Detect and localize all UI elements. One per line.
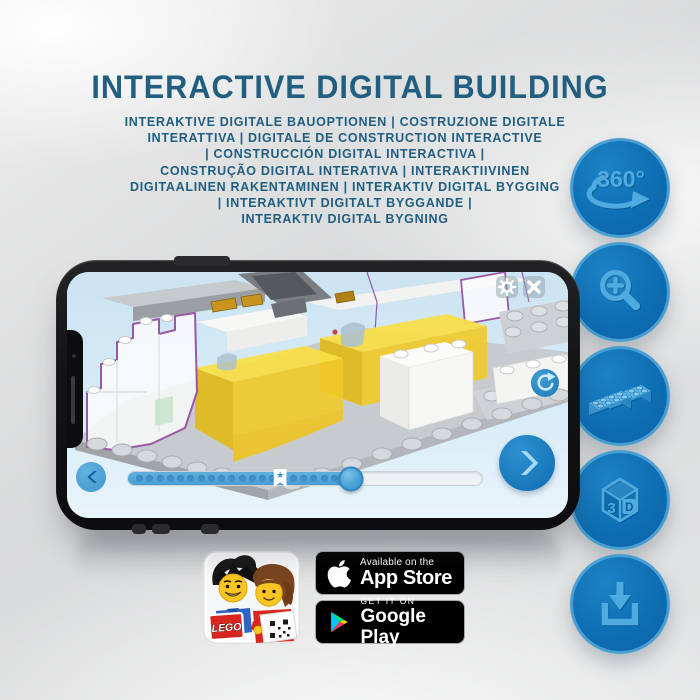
feature-badge-3d: 3 D <box>570 450 670 550</box>
slider-dots <box>136 472 338 485</box>
progress-slider[interactable]: ★ <box>127 471 483 486</box>
app-store-badge[interactable]: Available on the App Store <box>315 551 465 595</box>
subtitle-line: CONSTRUÇÃO DIGITAL INTERATIVA | INTERAKT… <box>45 163 645 179</box>
lego-app-icon[interactable]: LEGO <box>203 551 300 644</box>
3d-cube-icon: 3 D <box>592 472 648 528</box>
camera-notch <box>67 330 83 448</box>
subtitle-line: | CONSTRUCCIÓN DIGITAL INTERACTIVA | <box>45 146 645 162</box>
speaker-icon <box>71 376 75 424</box>
subtitle-line: INTERAKTIV DIGITAL BYGNING <box>45 211 645 227</box>
lego-logo-text: LEGO <box>211 621 242 635</box>
subtitle-block: INTERAKTIVE DIGITALE BAUOPTIONEN | COSTR… <box>45 114 645 227</box>
bricks-icon <box>587 367 653 425</box>
subtitle-line: INTERAKTIVE DIGITALE BAUOPTIONEN | COSTR… <box>45 114 645 130</box>
gear-icon <box>496 276 518 298</box>
feature-badge-zoom <box>570 242 670 342</box>
subtitle-line: | INTERAKTIVT DIGITALT BYGGANDE | <box>45 195 645 211</box>
chevron-left-icon <box>80 466 102 488</box>
feature-badge-download <box>570 554 670 654</box>
rotate-model-button[interactable] <box>531 369 559 397</box>
chevron-right-icon <box>506 442 548 484</box>
front-camera-icon <box>72 354 76 358</box>
power-button <box>174 256 230 266</box>
model-viewport[interactable]: ★ <box>67 272 568 518</box>
close-icon <box>523 276 545 298</box>
google-play-tagline: GET IT ON <box>361 596 465 606</box>
slider-thumb[interactable] <box>339 466 364 491</box>
close-button[interactable] <box>523 276 545 298</box>
feature-badge-bricks <box>570 346 670 446</box>
volume-down-button <box>201 524 219 534</box>
next-step-button[interactable] <box>499 435 555 491</box>
page-title: INTERACTIVE DIGITAL BUILDING <box>14 69 686 106</box>
cube-letter: D <box>625 502 633 514</box>
volume-up-button <box>152 524 170 534</box>
google-play-name: Google Play <box>361 606 465 648</box>
google-play-badge[interactable]: GET IT ON Google Play <box>315 600 465 644</box>
subtitle-line: DIGITAALINEN RAKENTAMINEN | INTERAKTIV D… <box>45 179 645 195</box>
previous-step-button[interactable] <box>76 462 106 492</box>
promo-graphic: INTERACTIVE DIGITAL BUILDING INTERAKTIVE… <box>0 0 700 700</box>
cube-digit: 3 <box>607 500 615 517</box>
phone-mockup: ★ <box>56 260 580 530</box>
subtitle-line: INTERATTIVA | DIGITALE DE CONSTRUCTION I… <box>45 130 645 146</box>
mute-switch <box>132 524 146 534</box>
lego-app-icon-art: LEGO <box>203 551 300 644</box>
google-play-logo-icon <box>327 609 352 635</box>
settings-button[interactable] <box>496 276 518 298</box>
app-store-name: App Store <box>360 568 452 589</box>
rotate-icon <box>533 371 557 395</box>
360-rotation-icon: 360° <box>581 159 659 217</box>
zoom-in-icon <box>592 264 648 320</box>
apple-logo-icon <box>327 558 351 589</box>
feature-badge-360: 360° <box>570 138 670 238</box>
rotation-label: 360° <box>597 166 645 192</box>
download-icon <box>592 576 648 632</box>
